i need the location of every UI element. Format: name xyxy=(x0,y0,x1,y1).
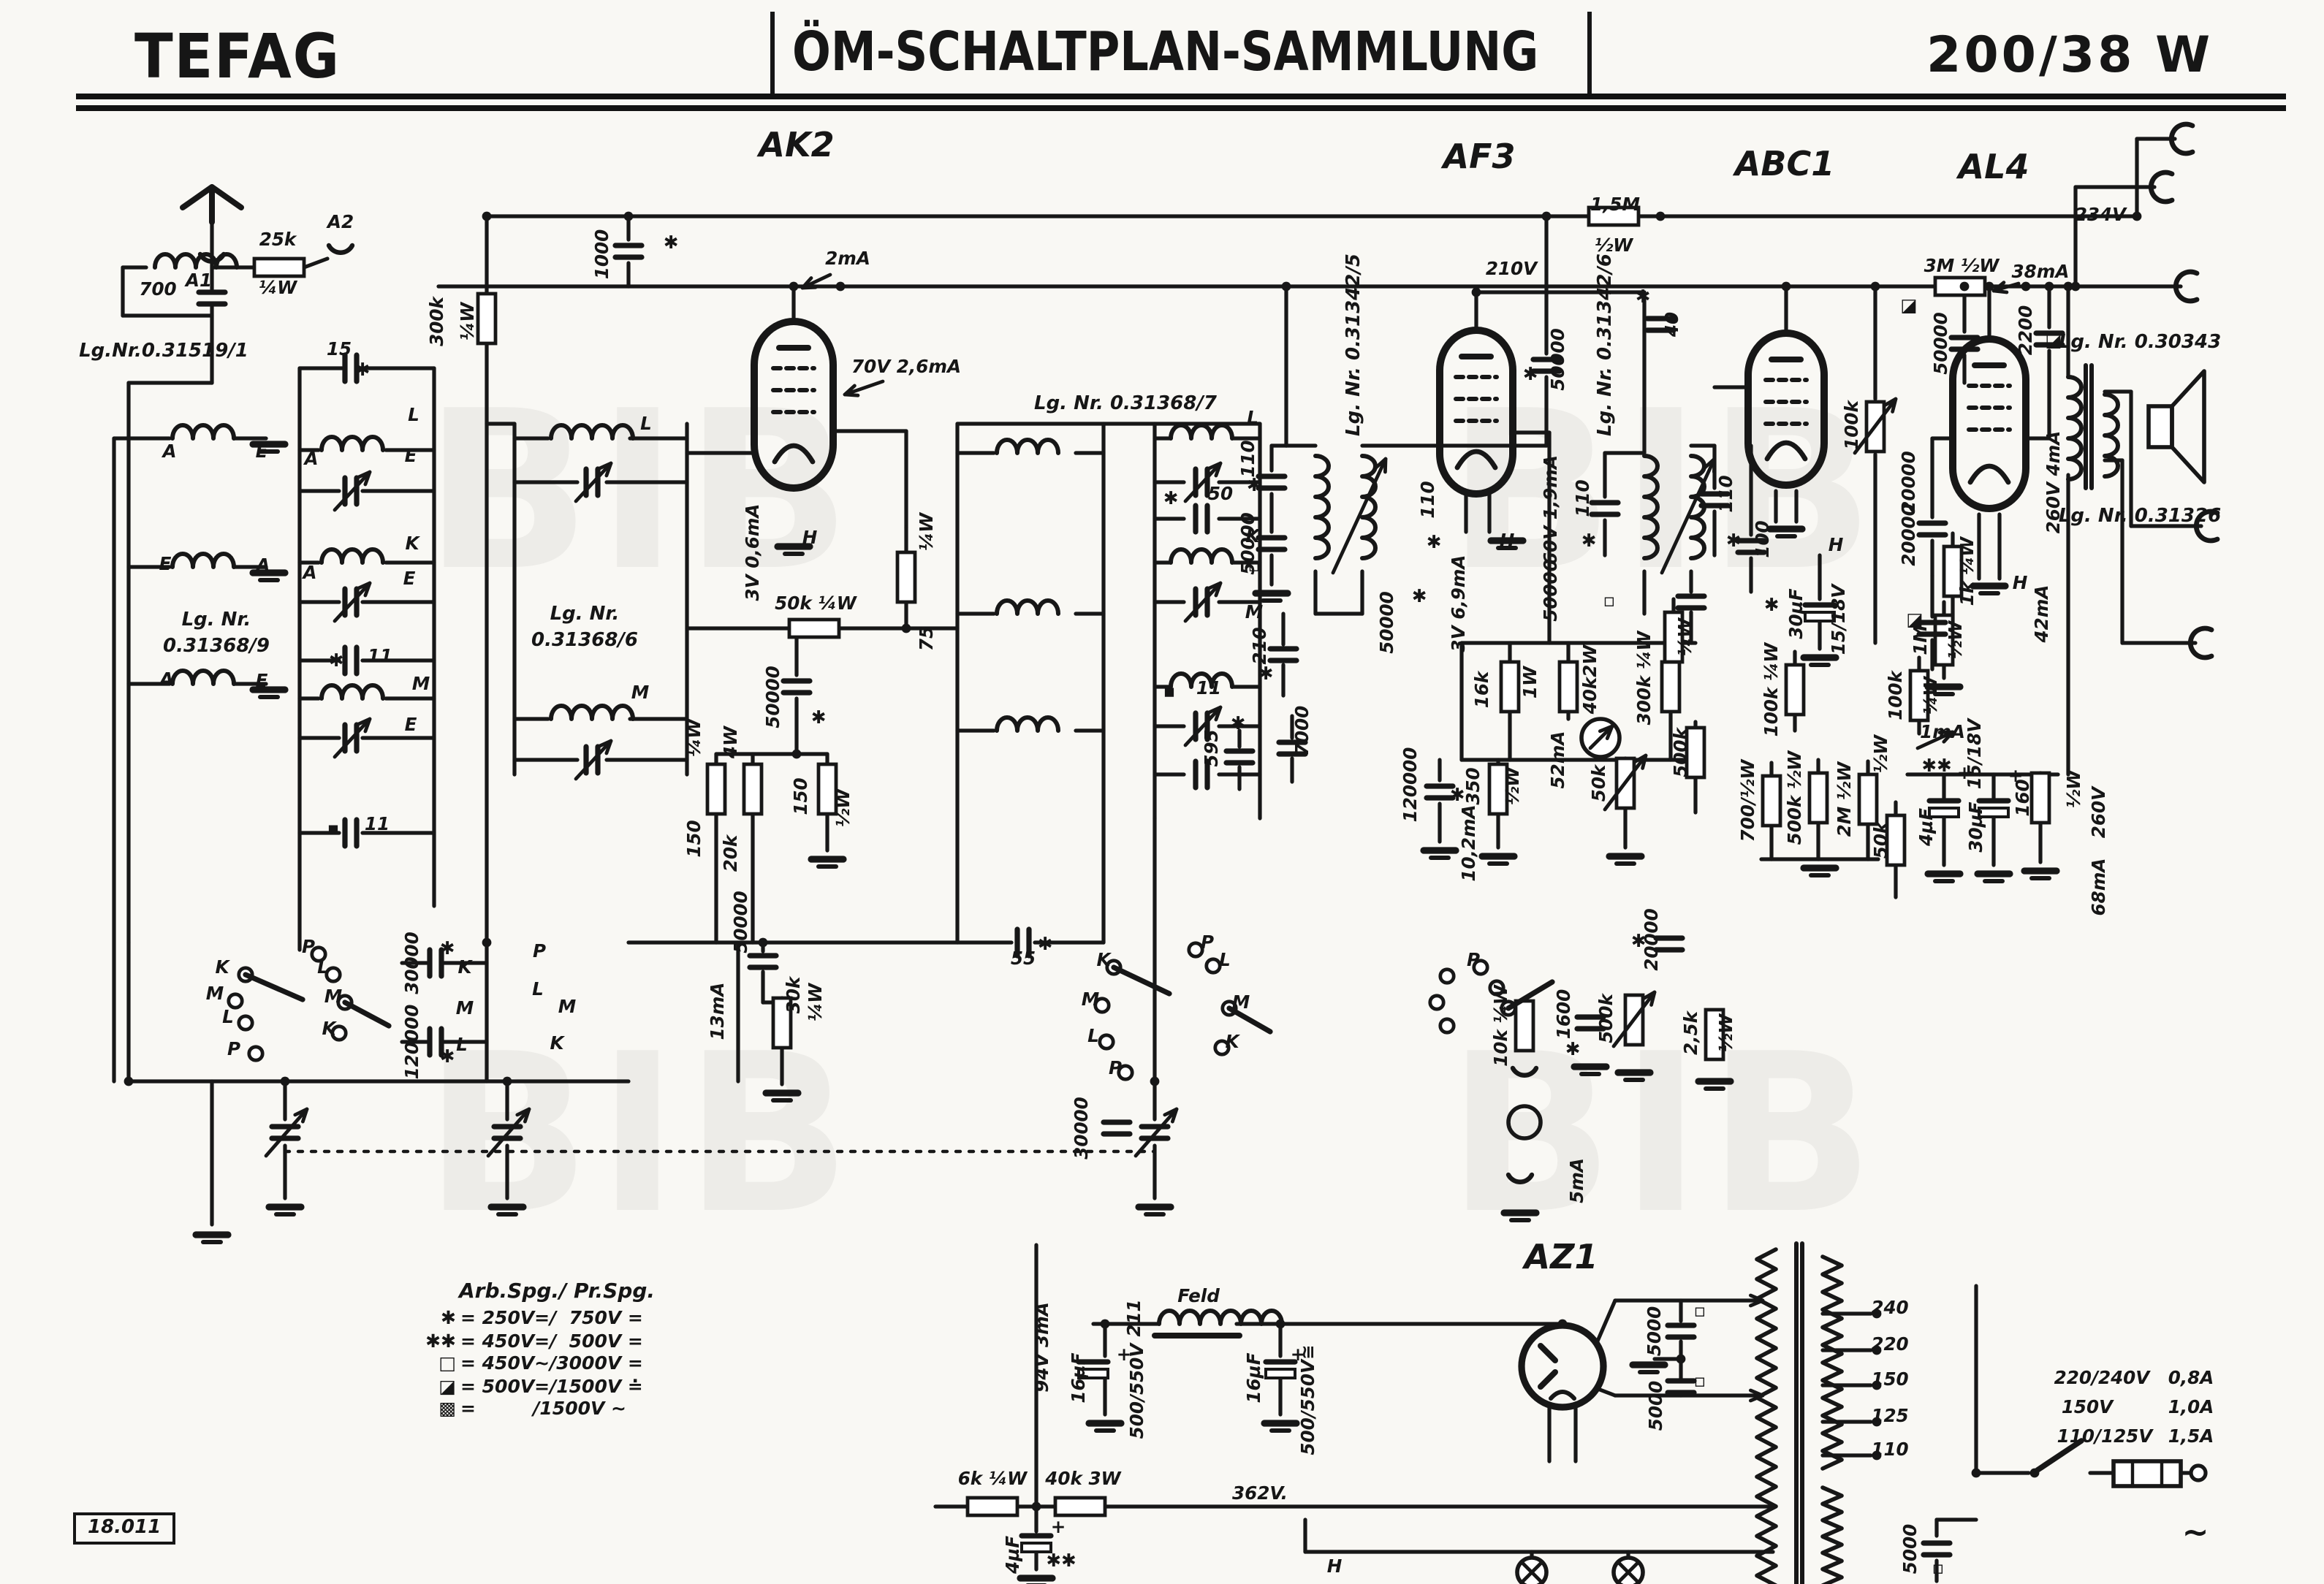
component-label: ▫ xyxy=(1694,1370,1706,1391)
switch-contact xyxy=(1440,1019,1454,1032)
pickup-jack xyxy=(1508,1106,1541,1138)
switch-contact xyxy=(1207,959,1220,972)
component-label: K xyxy=(215,956,230,978)
component-label: ½W xyxy=(1595,235,1634,256)
legend-text: = 450V=/ 500V = xyxy=(460,1329,643,1351)
component-label: ✱ xyxy=(440,937,455,959)
component-label: ✱ xyxy=(1412,585,1427,606)
component-label: L xyxy=(640,413,652,434)
wire xyxy=(304,259,327,267)
component-label: ▫ xyxy=(1248,555,1261,576)
coil xyxy=(322,685,383,698)
junction-dot xyxy=(2021,282,2031,292)
component-label: L xyxy=(1087,1025,1099,1046)
component-label: K xyxy=(1225,1031,1240,1052)
tube-az1 xyxy=(1541,1346,1555,1360)
switch-contact xyxy=(249,1047,262,1060)
component-label: 40 xyxy=(1661,312,1682,338)
component-label: 3M ½W xyxy=(1924,255,2001,276)
tube-az1 xyxy=(1541,1372,1555,1387)
junction-dot xyxy=(624,212,634,221)
component-label: ✱ xyxy=(1247,474,1262,495)
junction-dot xyxy=(1032,1502,1041,1512)
component-label: 220 xyxy=(1871,1333,1908,1355)
component-label: ▫ xyxy=(1694,1300,1706,1321)
junction-dot xyxy=(281,1077,290,1086)
component-label: K xyxy=(322,1018,337,1039)
component-label: 0,8A xyxy=(2168,1367,2214,1388)
component-label: ✱ xyxy=(1523,363,1538,384)
component-label: 1000 xyxy=(591,229,612,279)
component-label: ½W xyxy=(1502,766,1523,805)
component-label: 3V 0,6mA xyxy=(742,504,763,601)
component-label: 110 xyxy=(1572,479,1593,517)
mains-terminal xyxy=(2191,1466,2206,1480)
component-label: ¼W xyxy=(805,982,826,1021)
component-label: 5000 xyxy=(1899,1524,1921,1574)
component-label: M xyxy=(558,996,576,1017)
coil xyxy=(155,254,237,267)
component-label: 68mA xyxy=(2088,858,2109,916)
component-label: 700 xyxy=(139,278,176,300)
component-label: 50k xyxy=(1870,820,1891,858)
component-label: 300k xyxy=(426,296,447,346)
junction-dot xyxy=(2071,282,2081,292)
coil xyxy=(1171,425,1232,438)
coil xyxy=(551,425,633,438)
component-label: 0.31368/6 xyxy=(531,629,638,651)
component-label: 2200 xyxy=(2015,305,2036,355)
component-label: A1 xyxy=(184,270,212,291)
component-label: 4µF xyxy=(1915,808,1937,847)
component-label: ✱✱ xyxy=(1921,755,1951,776)
component-label: M xyxy=(324,986,342,1007)
component-label: ✱ xyxy=(329,650,344,671)
component-label: ½W xyxy=(1870,734,1891,773)
component-label: 1k ¼W xyxy=(1956,536,1978,606)
component-label: 500/550V xyxy=(1126,1342,1147,1439)
component-label: 125 xyxy=(1871,1405,1908,1426)
component-label: L xyxy=(1219,949,1231,970)
junction-dot xyxy=(789,282,799,292)
junction-dot xyxy=(482,938,492,948)
coil xyxy=(322,549,383,563)
component-label: 52mA xyxy=(1547,731,1568,789)
tube-abc1 xyxy=(1748,333,1824,485)
component-label: AF3 xyxy=(1440,137,1515,176)
component-label: 362V. xyxy=(1232,1482,1288,1504)
component-label: 500k xyxy=(1670,727,1691,777)
component-label: Lg. Nr. 0.30343 xyxy=(2059,331,2221,353)
resistor xyxy=(1501,662,1519,712)
component-label: E xyxy=(405,445,417,466)
component-label: ✱ xyxy=(811,707,827,728)
component-label: 150 xyxy=(1871,1368,1908,1390)
component-label: Lg. Nr. 0.31342/6 xyxy=(1594,254,1616,436)
component-label: 30µF xyxy=(1965,801,1986,852)
component-label: 16k xyxy=(1471,670,1492,708)
legend-row: ▩= /1500V ~ xyxy=(421,1397,699,1420)
resistor xyxy=(789,620,839,637)
resistor xyxy=(478,294,495,343)
component-label: L xyxy=(317,956,329,978)
switch-lever xyxy=(345,1002,389,1026)
component-label: 50k xyxy=(1588,764,1609,801)
component-label: 210V xyxy=(1486,258,1538,279)
ift-arrow xyxy=(1662,459,1714,573)
fuse xyxy=(2114,1461,2181,1486)
component-label: 150 xyxy=(790,777,811,815)
switch-contact xyxy=(239,1016,252,1029)
junction-dot xyxy=(792,750,802,759)
ift-arrow xyxy=(1333,459,1386,573)
component-label: ✱ xyxy=(1231,712,1246,734)
component-label: A xyxy=(158,669,173,690)
component-label: 1,5A xyxy=(2168,1425,2214,1447)
junction-dot xyxy=(1656,212,1666,221)
component-label: AL4 xyxy=(1956,147,2029,186)
component-label: 220/240V xyxy=(2054,1367,2152,1388)
component-label: 50000 xyxy=(730,891,751,953)
component-label: L xyxy=(532,978,544,999)
component-label: P xyxy=(1109,1057,1122,1078)
component-label: ✱ xyxy=(440,1046,455,1067)
component-label: 110 xyxy=(1715,475,1736,512)
component-label: ✱ xyxy=(1427,531,1442,552)
path xyxy=(1767,443,1805,459)
component-label: 234V xyxy=(2075,204,2127,225)
component-label: 110 xyxy=(1237,440,1258,477)
legend-row: □= 450V~/3000V = xyxy=(421,1352,699,1374)
component-label: E xyxy=(256,670,268,691)
component-label: 260V xyxy=(2088,785,2109,838)
component-label: 1mA xyxy=(1920,721,1965,742)
component-label: L xyxy=(1247,407,1258,428)
component-label: 120000 xyxy=(1400,747,1421,823)
coil xyxy=(551,706,633,719)
component-label: ✱ xyxy=(1764,594,1780,615)
junction-dot xyxy=(1472,288,1481,297)
socket-terminal xyxy=(1513,1068,1536,1075)
voltage-legend: Arb.Spg./ Pr.Spg. ✱= 250V=/ 750V = ✱✱= 4… xyxy=(421,1280,699,1420)
component-label: ▪ xyxy=(327,818,340,839)
junction-dot xyxy=(482,212,492,221)
legend-text: = 250V=/ 750V = xyxy=(460,1306,643,1328)
resistor xyxy=(1786,665,1804,715)
resistor xyxy=(744,764,762,814)
junction-dot xyxy=(836,282,846,292)
component-label: 38mA xyxy=(2012,261,2070,282)
component-label: 150V xyxy=(2062,1396,2114,1417)
component-label: M xyxy=(1245,601,1263,622)
component-label: 595 xyxy=(1201,729,1222,766)
junction-dot xyxy=(1676,1355,1686,1364)
switch-lever xyxy=(246,975,303,999)
component-label: 30k xyxy=(783,975,804,1013)
component-label: Lg. Nr. 0.31368/7 xyxy=(1034,392,1218,414)
transformer-winding xyxy=(1823,1257,1842,1469)
component-label: 500k ½W xyxy=(1784,750,1805,845)
resistor xyxy=(897,552,915,602)
component-label: 30000 xyxy=(1071,1097,1092,1160)
component-label: 100k ¼W xyxy=(1761,641,1782,737)
sheet-number: 18.011 xyxy=(73,1512,175,1545)
trimmer-capacitor xyxy=(1185,583,1220,621)
component-label: ✱ xyxy=(1631,930,1647,951)
component-label: ◪ xyxy=(1906,609,1923,630)
component-label: 50000 xyxy=(1547,328,1568,391)
component-label: H xyxy=(1829,534,1844,555)
component-label: 700/½W xyxy=(1737,758,1758,842)
component-label: 120000 xyxy=(401,1005,422,1080)
component-label: ~ xyxy=(2182,1514,2209,1551)
socket-terminal xyxy=(1508,1175,1532,1182)
junction-dot xyxy=(1101,1320,1110,1329)
component-label: M xyxy=(206,983,224,1004)
component-label: 2,5k xyxy=(1680,1010,1701,1055)
component-label: L xyxy=(408,404,419,425)
coil xyxy=(172,425,234,438)
legend-row: ✱✱= 450V=/ 500V = xyxy=(421,1329,699,1352)
junction-dot xyxy=(902,624,911,633)
socket-terminal xyxy=(329,245,352,253)
component-label: 11 xyxy=(368,645,392,666)
coil xyxy=(997,601,1058,614)
component-label: 1,0A xyxy=(2168,1396,2214,1417)
component-label: E xyxy=(403,568,416,589)
component-label: 25k xyxy=(259,229,297,250)
component-label: 1W xyxy=(1519,665,1541,698)
component-label: 0.31368/9 xyxy=(163,635,270,657)
component-label: ½W xyxy=(1715,1013,1736,1052)
component-label: ▫ xyxy=(1932,1557,1945,1578)
coil xyxy=(997,440,1058,453)
resistor xyxy=(1763,776,1780,826)
legend-text: = 500V=/1500V ≐ xyxy=(460,1374,643,1396)
component-label: ¼W xyxy=(1920,675,1941,715)
speaker xyxy=(2149,406,2172,447)
junction-dot xyxy=(2045,282,2054,292)
component-label: 100k xyxy=(1885,670,1906,720)
component-label: L xyxy=(222,1006,234,1027)
coil xyxy=(172,671,234,684)
component-label: P xyxy=(1467,949,1480,970)
component-label: 60V 1,9mA xyxy=(1540,455,1561,565)
component-label: 100k xyxy=(1841,400,1862,450)
coil xyxy=(1171,549,1232,563)
wire xyxy=(1596,1301,1615,1344)
tube-az1 xyxy=(1551,1392,1574,1398)
component-label: K xyxy=(457,956,473,978)
component-label: 16µF xyxy=(1068,1352,1089,1403)
component-label: Lg. Nr. xyxy=(182,609,251,631)
junction-dot xyxy=(759,938,768,948)
component-label: E xyxy=(159,553,172,574)
component-label: M xyxy=(456,997,474,1018)
component-label: A xyxy=(303,448,318,469)
component-label: 5000 xyxy=(1644,1306,1665,1356)
component-label: 5000 xyxy=(1645,1381,1666,1431)
component-label: M xyxy=(1082,989,1099,1010)
component-label: ½W xyxy=(2063,769,2084,808)
junction-dot xyxy=(1558,1320,1568,1329)
component-label: 50000 xyxy=(1930,312,1951,375)
resistor xyxy=(1560,662,1577,712)
component-label: 2M ½W xyxy=(1834,761,1855,837)
component-label: A xyxy=(254,555,270,576)
antenna-icon xyxy=(183,187,241,222)
component-label: 110 xyxy=(1871,1439,1908,1460)
component-label: ✱ xyxy=(1163,487,1179,509)
component-label: H xyxy=(1327,1556,1343,1577)
component-label: 10k ¼W xyxy=(1490,983,1511,1067)
component-label: 110/125V xyxy=(2057,1425,2154,1447)
resistor xyxy=(1810,773,1827,823)
junction-dot xyxy=(124,1077,134,1086)
component-label: 110 xyxy=(1417,481,1438,518)
junction-dot xyxy=(1960,282,1970,292)
speaker xyxy=(2172,371,2204,482)
resistor xyxy=(254,259,304,276)
component-label: ✱ xyxy=(1038,933,1053,954)
junction-dot xyxy=(1782,282,1791,292)
component-label: ¼W xyxy=(1674,617,1695,656)
component-label: 160 xyxy=(2012,779,2033,816)
component-label: 10,2mA xyxy=(1458,804,1479,881)
component-label: 20000 xyxy=(1898,451,1919,514)
coil xyxy=(2105,395,2118,476)
component-label: P xyxy=(533,940,546,962)
component-label: 150 xyxy=(683,820,705,857)
resistor xyxy=(1859,774,1877,824)
switch-contact xyxy=(1100,1035,1113,1048)
junction-dot xyxy=(1972,1469,1981,1478)
component-label: 11 xyxy=(365,813,390,834)
component-label: H xyxy=(1500,530,1515,551)
switch-contact xyxy=(1430,996,1443,1009)
junction-dot xyxy=(2133,212,2142,221)
resistor xyxy=(707,764,725,814)
junction-dot xyxy=(1150,1077,1160,1086)
coil xyxy=(1159,1311,1282,1324)
component-label: 240 xyxy=(1871,1297,1908,1318)
component-label: 55 xyxy=(1011,948,1036,969)
component-label: ✱ xyxy=(664,232,679,253)
component-label: 1600 xyxy=(1553,989,1574,1039)
component-label: Lg. Nr. xyxy=(550,603,620,625)
coil xyxy=(2068,377,2081,479)
legend-title: Arb.Spg./ Pr.Spg. xyxy=(421,1280,699,1303)
path xyxy=(1970,466,2008,482)
legend-symbol: □ xyxy=(421,1352,456,1374)
component-label: ✱ xyxy=(1726,530,1742,551)
component-label: ✱ xyxy=(355,359,371,380)
component-label: 500/550V≅ xyxy=(1297,1344,1318,1455)
component-label: ◪ xyxy=(2045,330,2062,351)
component-label: 94V 3mA xyxy=(1031,1302,1052,1393)
component-label: 15/18V xyxy=(1964,717,1985,789)
coil xyxy=(1644,456,1657,558)
path xyxy=(775,446,813,462)
component-label: K xyxy=(405,533,420,554)
legend-symbol: ✱✱ xyxy=(421,1329,456,1352)
component-label: 50 xyxy=(1208,483,1233,504)
component-label: 30000 xyxy=(401,932,422,994)
component-label: 7000 xyxy=(1291,706,1313,755)
legend-text: = 450V~/3000V = xyxy=(460,1352,643,1374)
path xyxy=(1457,452,1495,468)
component-label: 5mA xyxy=(1566,1158,1587,1203)
component-label: ✱ xyxy=(1636,286,1651,307)
component-label: 50000 xyxy=(762,666,783,728)
legend-text: = /1500V ~ xyxy=(460,1397,626,1419)
component-label: E xyxy=(256,441,268,462)
switch-lever xyxy=(1114,967,1169,994)
legend-symbol: ◪ xyxy=(421,1374,456,1397)
component-label: ▪ xyxy=(1163,680,1176,701)
legend-row: ✱= 250V=/ 750V = xyxy=(421,1306,699,1329)
component-label: 300k ¼W xyxy=(1633,630,1655,726)
component-label: Lg.Nr.0.31519/1 xyxy=(79,340,248,362)
tube-az1 xyxy=(1522,1325,1603,1407)
component-label: 210 xyxy=(1249,627,1270,664)
component-label: 4W xyxy=(720,725,741,759)
component-label: 30µF xyxy=(1785,588,1807,639)
component-label: AK2 xyxy=(756,125,834,164)
junction-dot xyxy=(1282,282,1291,292)
component-label: A xyxy=(161,441,176,462)
coil xyxy=(1315,456,1329,558)
junction-dot xyxy=(1871,282,1880,292)
component-label: ½W xyxy=(1945,620,1966,659)
schematic-page: TEFAG ÖM-SCHALTPLAN-SAMMLUNG 200/38 W BI… xyxy=(0,0,2324,1584)
component-label: + xyxy=(1051,1516,1066,1537)
component-label: 211 xyxy=(1123,1299,1144,1336)
resistor xyxy=(1516,1001,1533,1051)
resistor xyxy=(968,1498,1017,1515)
component-label: ¼W xyxy=(259,277,298,298)
component-label: 50000 xyxy=(1540,559,1561,622)
component-label: E xyxy=(405,714,417,735)
component-label: L xyxy=(456,1034,468,1055)
coil xyxy=(997,717,1058,731)
component-label: 1,5M xyxy=(1590,194,1640,215)
component-label: K xyxy=(1096,949,1112,970)
component-label: 2mA xyxy=(825,248,870,269)
component-label: 3V 6,9mA xyxy=(1448,555,1469,652)
component-label: ✱ xyxy=(1258,663,1274,684)
component-label: M xyxy=(1232,991,1250,1013)
junction-dot xyxy=(1542,212,1552,221)
component-label: 13mA xyxy=(707,983,728,1040)
component-label: 50k ¼W xyxy=(775,593,858,614)
component-label: 500k xyxy=(1595,993,1617,1043)
component-label: 40k 3W xyxy=(1044,1468,1122,1489)
component-label: ✱✱ xyxy=(1046,1550,1076,1571)
resistor xyxy=(1055,1498,1105,1515)
component-label: 50000 xyxy=(1376,591,1397,654)
component-label: ✱ xyxy=(1565,1038,1581,1059)
component-label: AZ1 xyxy=(1522,1237,1598,1276)
component-label: 11 xyxy=(1196,677,1221,698)
component-label: P xyxy=(227,1038,240,1059)
component-label: 100 xyxy=(1752,520,1773,557)
component-label: 6k ¼W xyxy=(958,1468,1028,1489)
component-label: ½W xyxy=(832,788,854,827)
component-label: P xyxy=(1201,932,1214,953)
component-label: H xyxy=(802,527,818,548)
component-label: ABC1 xyxy=(1733,144,1834,183)
